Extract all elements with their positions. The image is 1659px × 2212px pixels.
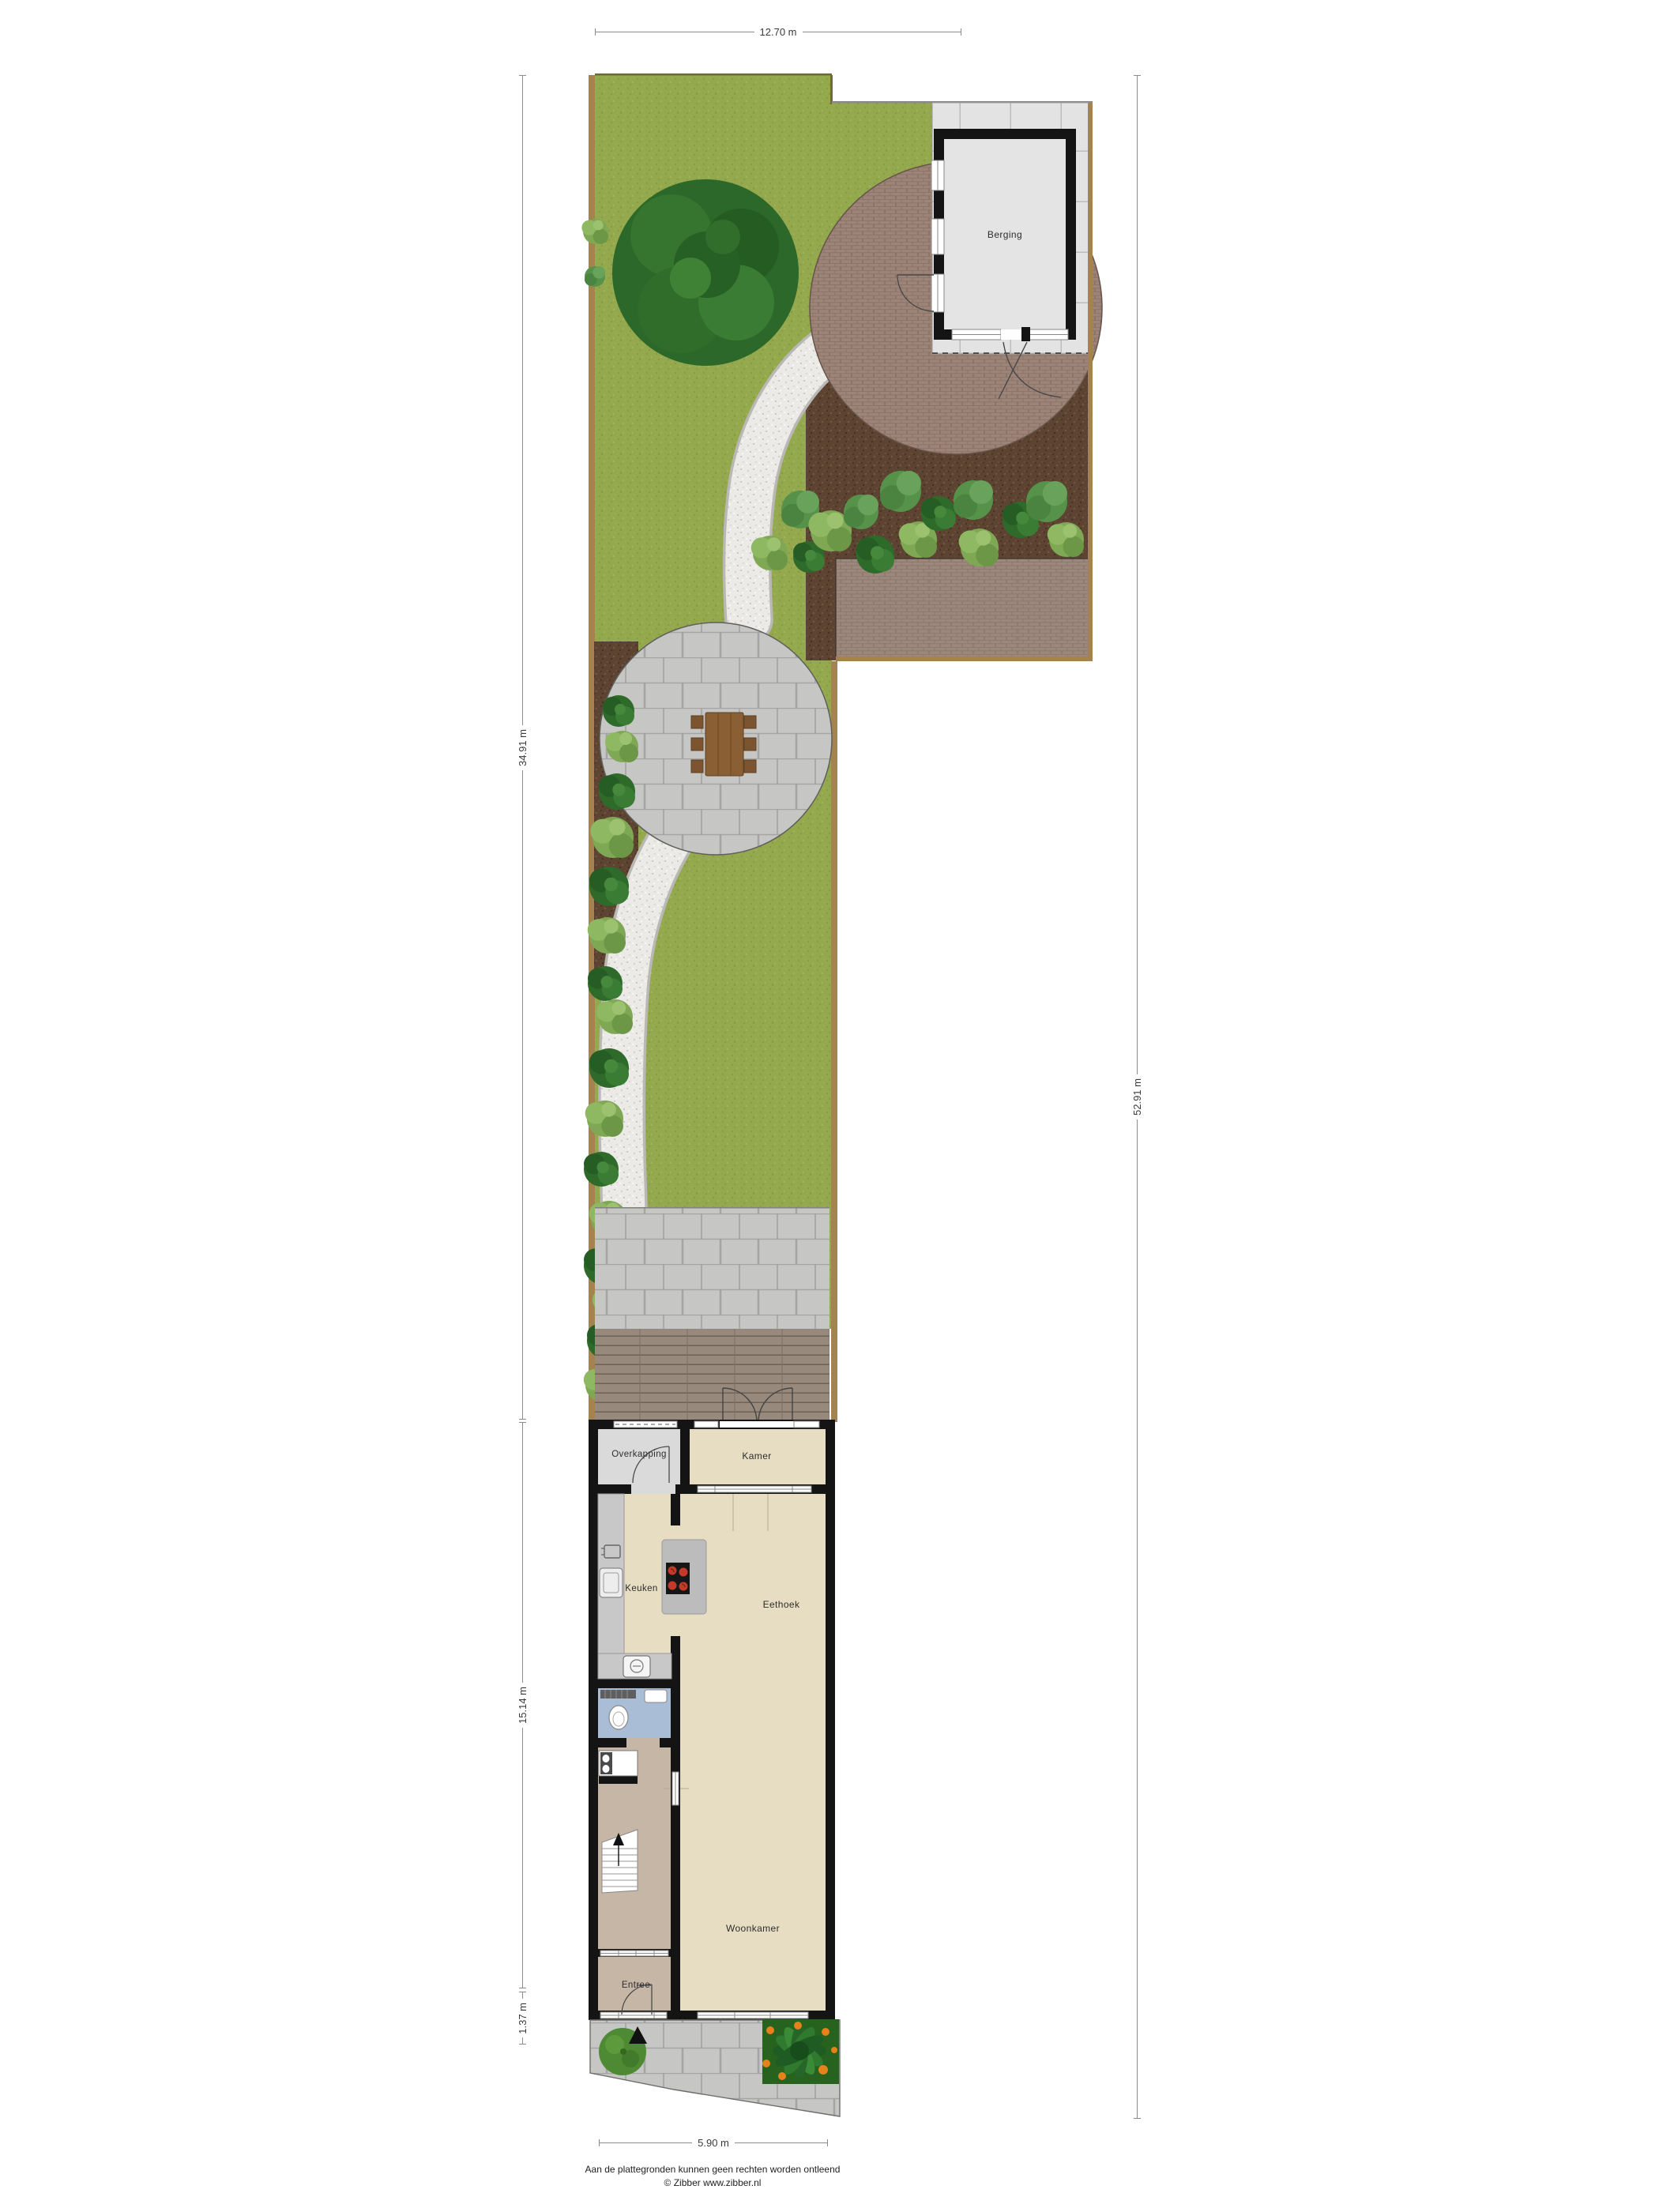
- brick-path: [836, 559, 1093, 661]
- dimension-house-left: 15.14 m: [513, 1422, 531, 1988]
- footer-credit: © Zibber www.zibber.nl: [476, 2176, 950, 2190]
- dimension-bottom-label: 5.90 m: [698, 2137, 729, 2149]
- dimension-bottom: 5.90 m: [599, 2134, 828, 2151]
- floorplan-page: Berging Overkapping Kamer Keuken Eethoek…: [0, 0, 1659, 2212]
- garden-top-edge: [595, 73, 832, 76]
- meter-cupboard: [599, 1751, 638, 1776]
- house: [589, 1420, 835, 2020]
- dimension-top-label: 12.70 m: [760, 26, 797, 38]
- front-planter: [762, 2019, 839, 2084]
- floorplan-graphic: [0, 0, 1659, 2212]
- room-label-keuken: Keuken: [625, 1584, 657, 1593]
- room-label-berging: Berging: [987, 229, 1022, 240]
- footer-disclaimer: Aan de plattegronden kunnen geen rechten…: [476, 2163, 950, 2176]
- lower-paving: [595, 1207, 829, 1329]
- room-label-entree: Entree: [622, 1981, 650, 1990]
- footer: Aan de plattegronden kunnen geen rechten…: [476, 2163, 950, 2190]
- room-label-overkapping: Overkapping: [611, 1450, 667, 1459]
- dimension-front-left-label: 1.37 m: [517, 2003, 529, 2034]
- fence-right-upper: [1088, 103, 1093, 661]
- dimension-house-left-label: 15.14 m: [517, 1687, 529, 1724]
- large-tree: [612, 179, 799, 366]
- room-label-woonkamer: Woonkamer: [726, 1923, 780, 1934]
- garden: [581, 73, 1102, 1433]
- garden-step-edge: [830, 75, 833, 104]
- front-yard: [590, 2019, 840, 2116]
- room-label-kamer: Kamer: [742, 1450, 771, 1461]
- overkapping-door-opening: [631, 1484, 675, 1494]
- fence-right-lower: [831, 661, 837, 1422]
- radiator-icon: [600, 1690, 636, 1698]
- dimension-right-total-label: 52.91 m: [1131, 1078, 1143, 1115]
- shed-door-post: [1021, 327, 1030, 341]
- garden-table-set: [691, 713, 756, 776]
- dimension-garden-left: 34.91 m: [513, 75, 531, 1420]
- dimension-front-left: 1.37 m: [513, 1992, 531, 2045]
- wood-deck: [595, 1329, 829, 1422]
- dimension-right-total: 52.91 m: [1128, 75, 1145, 2119]
- room-label-eethoek: Eethoek: [763, 1599, 800, 1610]
- toilet-door-opening: [626, 1738, 660, 1747]
- dimension-top: 12.70 m: [595, 23, 961, 40]
- dimension-garden-left-label: 34.91 m: [517, 729, 529, 766]
- cistern-icon: [645, 1690, 667, 1702]
